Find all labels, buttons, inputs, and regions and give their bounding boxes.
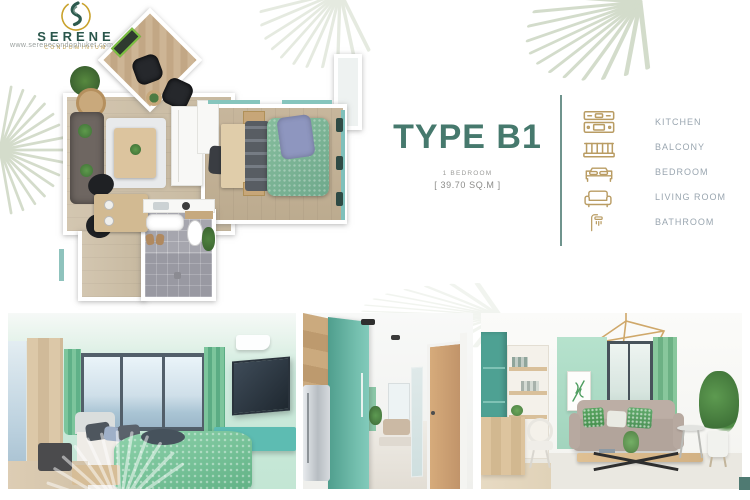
dining-table-topview [94,194,148,232]
living-glass-strip [59,249,64,281]
slippers [155,234,164,246]
sofa-plant-cushion [80,164,93,177]
bedroom-icon [583,161,619,183]
bedroom-photo [8,313,296,489]
kitchen-icon [583,109,619,135]
legend-item-kitchen: KITCHEN [583,112,726,132]
balcony-planter [336,156,343,170]
leaf-pillow [582,407,604,427]
table-plant [130,144,141,155]
mirror-panel [411,367,423,478]
toilet [187,220,203,246]
wood-door [427,341,460,489]
ceiling-light [361,319,375,325]
distant-rug [379,437,413,446]
slippers [145,233,154,245]
bedroom-window-glass [208,100,260,104]
place-setting [104,216,114,226]
book-shelf-board [509,391,547,395]
book-shelf-board [509,367,547,371]
table-flowers [623,431,639,453]
bathroom-shelf [185,211,213,219]
kitchen-stove [182,202,190,210]
door-handle [431,411,435,415]
bed-blue-blanket [276,114,316,160]
shelf-plant [511,405,523,416]
room-legend: KITCHEN BALCONY [583,112,726,237]
top-palm-leaf [505,0,667,110]
unit-type-title: TYPE B1 [375,118,560,157]
white-pillow [607,411,627,428]
plant-pot-white [708,431,728,457]
refrigerator-handle [307,393,309,463]
place-setting [104,200,114,210]
living-room-icon [583,186,619,208]
left-palm-leaf [0,87,64,213]
kitchen-sink [153,202,169,210]
white-palm-overlay [8,313,296,489]
door-frame [460,333,467,489]
legend-item-living-room: LIVING ROOM [583,187,726,207]
unit-headline: TYPE B1 1 BEDROOM [ 39.70 SQ.M ] [375,118,560,190]
bathroom-plant [202,227,215,251]
books [521,381,539,391]
corner-accent-square [739,477,750,490]
bedroom-window-glass [282,100,332,104]
balcony-planter [336,118,343,132]
bed-pillows [245,121,269,191]
balcony-plant-table [146,90,162,106]
bathroom-icon [583,210,619,234]
unit-area: [ 39.70 SQ.M ] [375,180,560,190]
living-room-photo [481,313,742,489]
legend-item-bathroom: BATHROOM [583,212,726,232]
distant-plant [369,406,382,425]
pantry-handle [361,373,363,417]
legend-label-kitchen: KITCHEN [655,117,702,127]
teal-shelf-line [483,367,505,369]
sofa-plant-cushion [78,124,92,138]
teal-shelf-line [483,401,505,403]
table-book [599,449,615,453]
bathtub [146,214,184,231]
leaf-pillow [626,407,652,429]
hallway-photo [303,313,473,489]
sofa-armrest [569,413,580,449]
floorplan-dining-area [78,231,146,301]
legend-item-bedroom: BEDROOM [583,162,726,182]
brochure-page: SERENE CONDOMINIUM www.serenecondophuket… [0,0,750,500]
balcony-planter [336,192,343,206]
legend-label-bedroom: BEDROOM [655,167,709,177]
balcony-icon [583,135,619,159]
kitchen-counter-line [178,110,179,182]
ceiling-light [391,335,400,340]
legend-label-living-room: LIVING ROOM [655,192,726,202]
books [512,357,528,367]
bed-headboard-desk [221,124,247,188]
shower-drain [174,272,181,279]
distant-sofa [383,419,410,435]
legend-label-balcony: BALCONY [655,142,705,152]
desk-cabinet [481,417,525,475]
floorplan [58,6,362,304]
desk-chair-seat [527,441,553,450]
upper-wood-cabinet [303,313,330,393]
legend-label-bathroom: BATHROOM [655,217,714,227]
unit-bedroom-count: 1 BEDROOM [375,170,560,177]
legend-divider-line [560,95,562,246]
tall-plant [699,371,739,435]
round-side-table [677,425,705,431]
legend-item-balcony: BALCONY [583,137,726,157]
